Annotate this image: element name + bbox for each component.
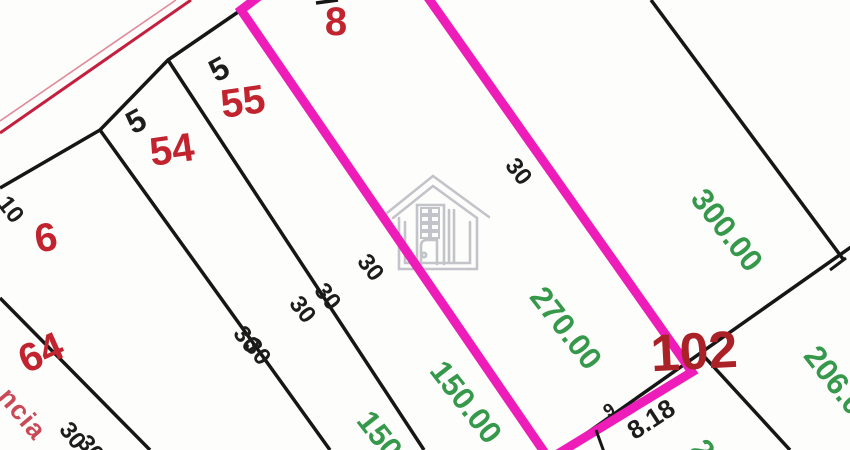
house-watermark-icon [382,176,489,269]
parcel-label-8: 8 [325,2,347,42]
cadastral-map: 8 55 54 6 64 102 5 5 10 30 30 30 30 30 3… [0,0,850,450]
boundary-line-54-55 [168,60,424,450]
parcel-label-55: 55 [218,79,268,125]
parcel-label-102: 102 [649,324,738,380]
boundary-line-6-54 [100,130,330,450]
parcel-label-54: 54 [147,127,197,173]
boundary-line-right [651,0,843,259]
